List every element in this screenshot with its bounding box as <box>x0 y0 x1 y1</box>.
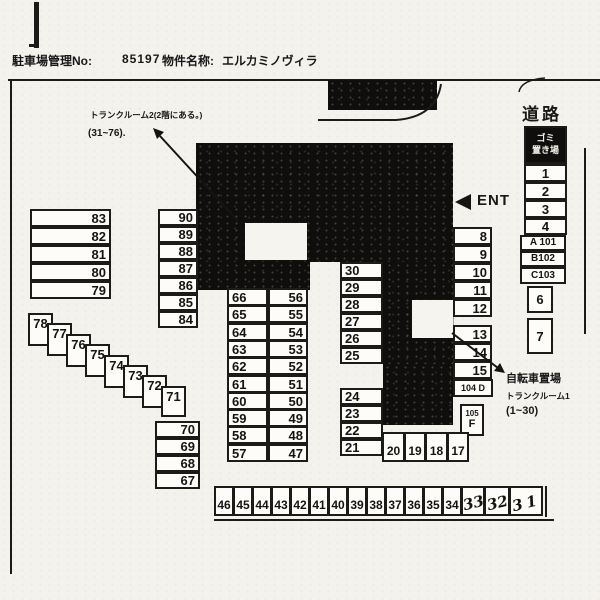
parking-spot-70: 70 <box>155 421 200 438</box>
parking-spot-28: 28 <box>340 296 383 313</box>
parking-spot-3: 3 <box>524 200 567 218</box>
parking-spot-60: 60 <box>227 392 268 410</box>
unit-spot-104d: 104 D <box>453 379 493 397</box>
parking-spot-83: 83 <box>30 209 111 227</box>
parking-spot-62: 62 <box>227 357 268 375</box>
mgmt-no-value: 85197 <box>122 52 160 66</box>
trunkroom2-courtyard <box>245 223 307 260</box>
parking-spot-55: 55 <box>268 305 308 323</box>
parking-spot-4: 4 <box>524 218 567 235</box>
parking-spot-45: 45 <box>233 486 253 516</box>
parking-spot-61: 61 <box>227 375 268 393</box>
parking-spot-87: 87 <box>158 260 198 277</box>
parking-spot-40: 40 <box>328 486 348 516</box>
parking-spot-63: 63 <box>227 340 268 358</box>
parking-spot-10: 10 <box>453 263 492 281</box>
parking-spot-29: 29 <box>340 279 383 296</box>
parking-spot-1: 1 <box>524 164 567 182</box>
ent-label: ENT <box>477 192 510 209</box>
unit-105-label: 105 <box>465 410 478 419</box>
parking-spot-7: 7 <box>527 318 553 354</box>
bottom-row-end-line <box>545 486 547 517</box>
parking-spot-12: 12 <box>453 299 492 317</box>
parking-spot-20: 20 <box>382 432 405 462</box>
parking-spot-27: 27 <box>340 313 383 330</box>
mgmt-no-label: 駐車場管理No: <box>12 52 92 69</box>
parking-spot-59: 59 <box>227 409 268 427</box>
parking-spot-85: 85 <box>158 294 198 311</box>
parking-spot-56: 56 <box>268 288 308 306</box>
map-right-border <box>584 148 586 334</box>
parking-spot-36: 36 <box>404 486 424 516</box>
bicycle-note-line1: 自転車置場 <box>506 370 561 386</box>
bicycle-arrow-head-icon <box>494 363 505 373</box>
parking-spot-71: 71 <box>161 386 186 417</box>
parking-spot-21: 21 <box>340 439 383 456</box>
parking-spot-37: 37 <box>385 486 405 516</box>
trunkroom2-note-line1: トランクルーム2(2階にある。) <box>90 109 202 121</box>
property-name-value: エルカミノヴィラ <box>222 52 318 69</box>
parking-spot-9: 9 <box>453 245 492 263</box>
corner-bracket-foot <box>29 44 39 47</box>
parking-spot-38: 38 <box>366 486 386 516</box>
map-left-border <box>10 79 12 574</box>
parking-spot-24: 24 <box>340 388 383 405</box>
parking-spot-50: 50 <box>268 392 308 410</box>
road-label: 道路 <box>522 100 562 125</box>
parking-spot-25: 25 <box>340 347 383 364</box>
parking-spot-69: 69 <box>155 438 200 455</box>
scanned-parking-map: { "header": { "mgmt_label": "駐車場管理No:", … <box>0 0 600 600</box>
parking-spot-66: 66 <box>227 288 268 306</box>
parking-spot-89: 89 <box>158 226 198 243</box>
parking-spot-2: 2 <box>524 182 567 200</box>
building-left-wing <box>196 262 310 290</box>
parking-spot-82: 82 <box>30 227 111 245</box>
parking-spot-30: 30 <box>340 262 383 279</box>
bottom-row-underline <box>214 519 554 521</box>
corner-bracket-mark <box>34 2 39 48</box>
parking-spot-11: 11 <box>453 281 492 299</box>
parking-spot-48: 48 <box>268 426 308 444</box>
parking-spot-39: 39 <box>347 486 367 516</box>
parking-spot-44: 44 <box>252 486 272 516</box>
parking-spot-22: 22 <box>340 422 383 439</box>
parking-spot-90: 90 <box>158 209 198 226</box>
parking-spot-31: 31 <box>509 486 543 516</box>
parking-spot-79: 79 <box>30 281 111 299</box>
parking-spot-33: 33 <box>461 486 485 516</box>
property-name-label: 物件名称: <box>162 52 214 69</box>
parking-spot-43: 43 <box>271 486 291 516</box>
parking-spot-84: 84 <box>158 311 198 328</box>
ent-arrow-icon <box>455 194 471 210</box>
parking-spot-88: 88 <box>158 243 198 260</box>
parking-spot-8: 8 <box>453 227 492 245</box>
parking-spot-35: 35 <box>423 486 443 516</box>
garbage-area-box: ゴミ 置き場 <box>524 126 567 164</box>
parking-spot-51: 51 <box>268 375 308 393</box>
parking-spot-68: 68 <box>155 455 200 472</box>
parking-spot-46: 46 <box>214 486 234 516</box>
parking-spot-53: 53 <box>268 340 308 358</box>
bicycle-note-line2: トランクルーム1 <box>506 390 570 402</box>
parking-spot-13: 13 <box>453 325 492 343</box>
trunkroom2-note-line2: (31~76). <box>88 128 126 139</box>
building-right-wing-lower <box>383 364 453 425</box>
parking-spot-17: 17 <box>447 432 469 462</box>
parking-spot-42: 42 <box>290 486 310 516</box>
map-top-border <box>8 79 600 81</box>
parking-spot-41: 41 <box>309 486 329 516</box>
parking-spot-65: 65 <box>227 305 268 323</box>
unit-spot-c103: C103 <box>520 267 566 284</box>
parking-spot-49: 49 <box>268 409 308 427</box>
parking-spot-18: 18 <box>425 432 448 462</box>
parking-spot-81: 81 <box>30 245 111 263</box>
parking-spot-23: 23 <box>340 405 383 422</box>
trunkroom2-arrow-head-icon <box>153 128 164 139</box>
garbage-label-line1: ゴミ <box>536 133 554 145</box>
garbage-label-line2: 置き場 <box>532 145 559 157</box>
unit-spot-b102: B102 <box>520 251 566 267</box>
parking-spot-52: 52 <box>268 357 308 375</box>
building-main-top <box>196 143 453 262</box>
parking-spot-14: 14 <box>453 343 492 361</box>
parking-spot-34: 34 <box>442 486 462 516</box>
bicycle-note-line3: (1~30) <box>506 405 538 417</box>
parking-spot-57: 57 <box>227 444 268 462</box>
parking-spot-32: 32 <box>484 486 510 516</box>
unit-spot-a101: A 101 <box>520 235 566 251</box>
bicycle-area-courtyard <box>412 300 453 338</box>
parking-spot-47: 47 <box>268 444 308 462</box>
parking-spot-54: 54 <box>268 323 308 341</box>
parking-spot-67: 67 <box>155 472 200 489</box>
parking-spot-15: 15 <box>453 361 492 379</box>
parking-spot-86: 86 <box>158 277 198 294</box>
unit-f-label: F <box>469 418 476 430</box>
parking-spot-19: 19 <box>404 432 426 462</box>
building-top-structure <box>328 80 437 110</box>
parking-spot-58: 58 <box>227 426 268 444</box>
parking-spot-64: 64 <box>227 323 268 341</box>
parking-spot-26: 26 <box>340 330 383 347</box>
parking-spot-80: 80 <box>30 263 111 281</box>
parking-spot-6: 6 <box>527 286 553 313</box>
